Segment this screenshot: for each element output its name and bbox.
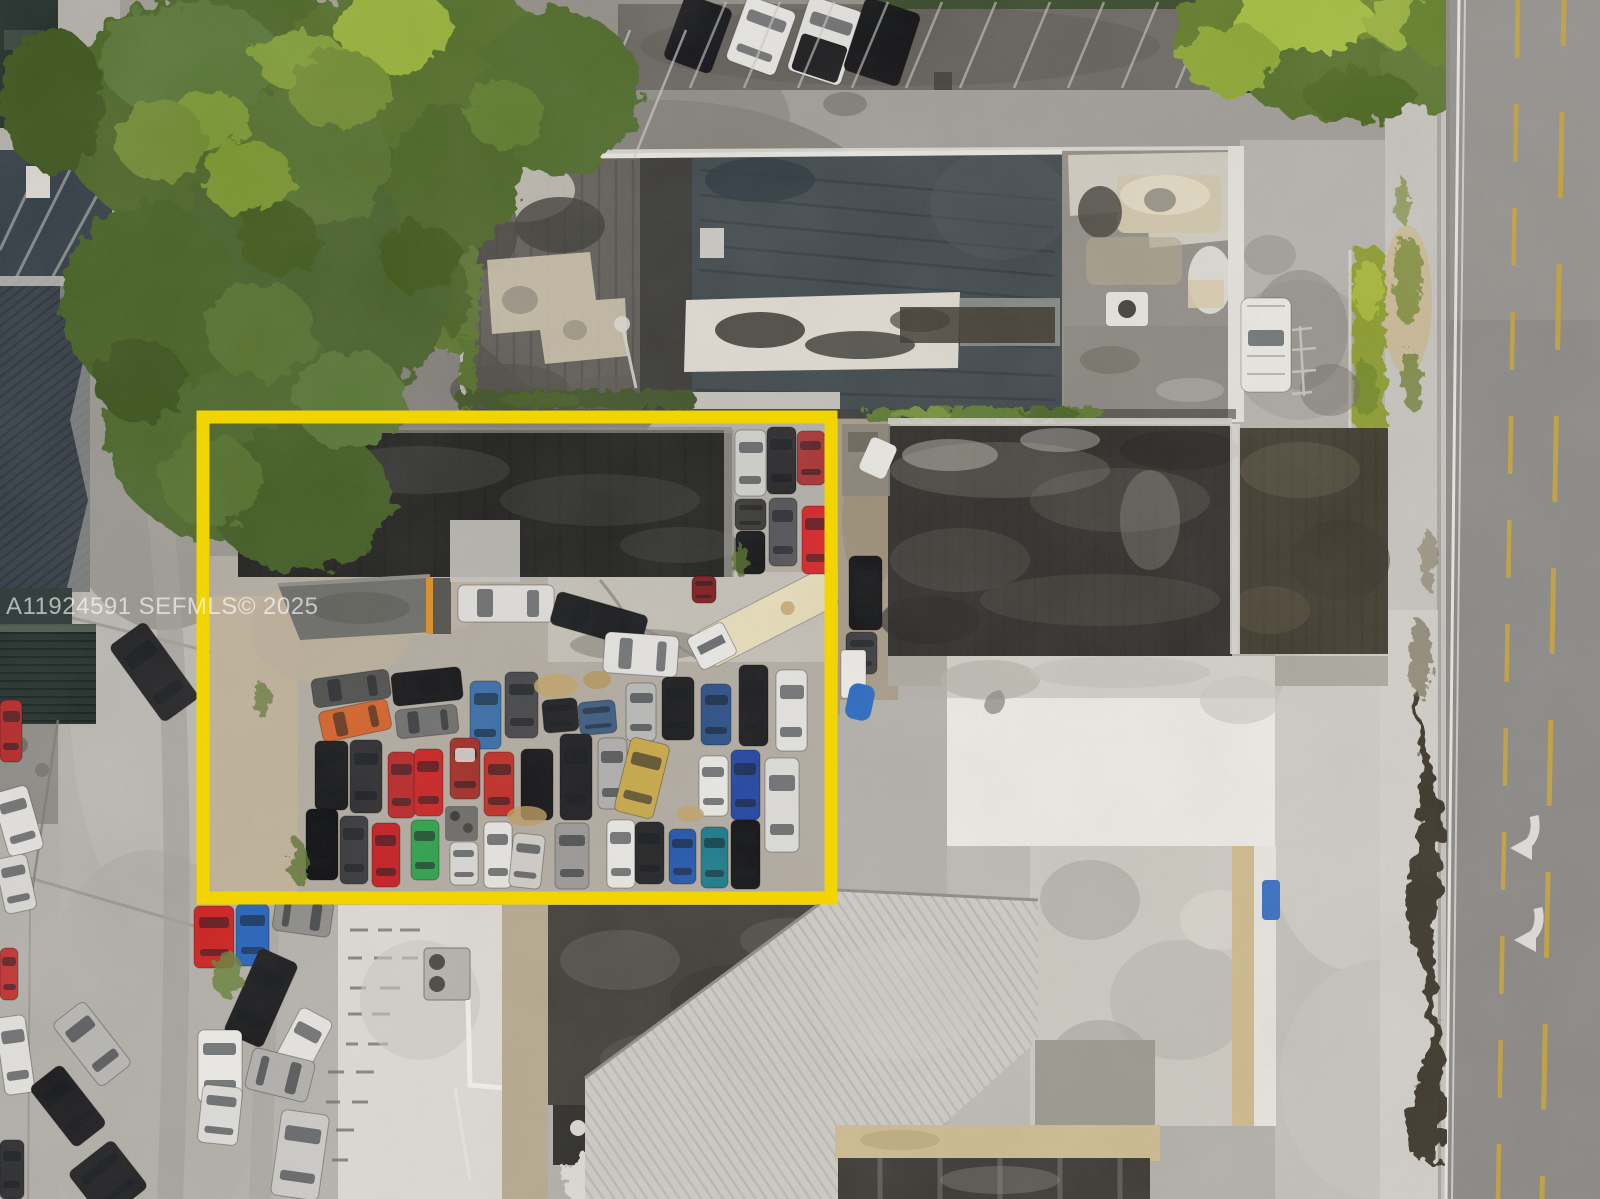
svg-text:A11924591 SEFMLS© 2025: A11924591 SEFMLS© 2025 xyxy=(6,593,318,620)
